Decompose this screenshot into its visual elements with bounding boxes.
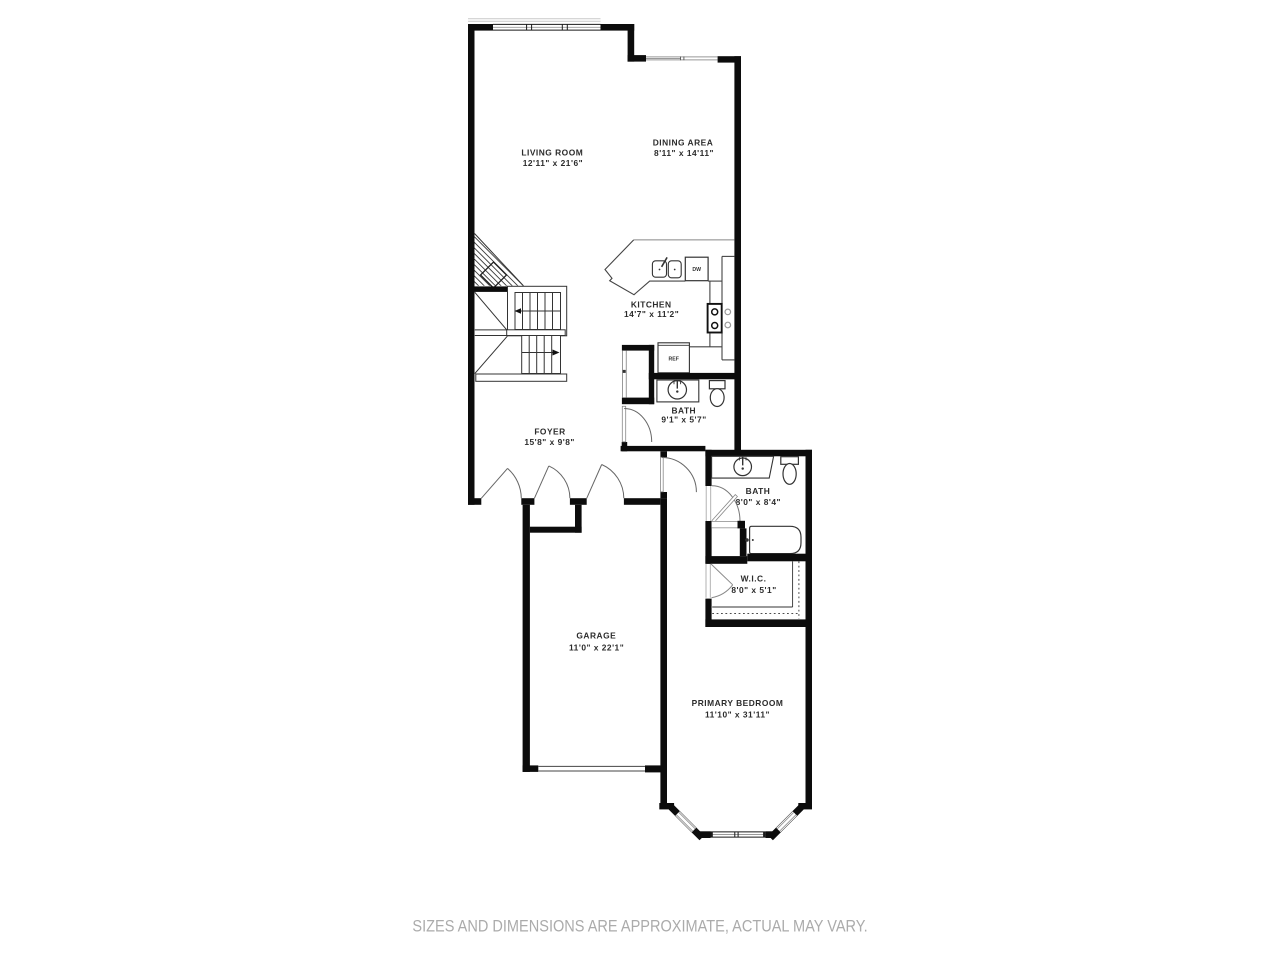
svg-text:BATH: BATH [746,486,771,496]
svg-text:LIVING ROOM: LIVING ROOM [521,148,583,158]
svg-text:W.I.C.: W.I.C. [741,573,767,583]
svg-text:9'1" x 5'7": 9'1" x 5'7" [661,415,706,425]
svg-text:11'10" x 31'11": 11'10" x 31'11" [705,709,770,719]
svg-text:14'7" x 11'2": 14'7" x 11'2" [624,309,679,319]
svg-text:8'0" x 5'1": 8'0" x 5'1" [731,585,776,595]
svg-text:FOYER: FOYER [534,426,565,436]
svg-text:12'11" x 21'6": 12'11" x 21'6" [523,158,583,168]
svg-text:11'0" x 22'1": 11'0" x 22'1" [569,643,624,653]
svg-text:DW: DW [692,267,701,273]
svg-text:8'0" x 8'4": 8'0" x 8'4" [736,497,781,507]
svg-text:8'11" x 14'11": 8'11" x 14'11" [654,148,714,158]
svg-text:15'8" x 9'8": 15'8" x 9'8" [524,437,575,447]
svg-text:DINING AREA: DINING AREA [653,137,714,147]
svg-text:GARAGE: GARAGE [576,630,616,640]
svg-text:SIZES AND DIMENSIONS ARE APPRO: SIZES AND DIMENSIONS ARE APPROXIMATE, AC… [412,917,867,935]
svg-text:PRIMARY BEDROOM: PRIMARY BEDROOM [692,698,784,708]
svg-text:REF: REF [669,356,679,362]
